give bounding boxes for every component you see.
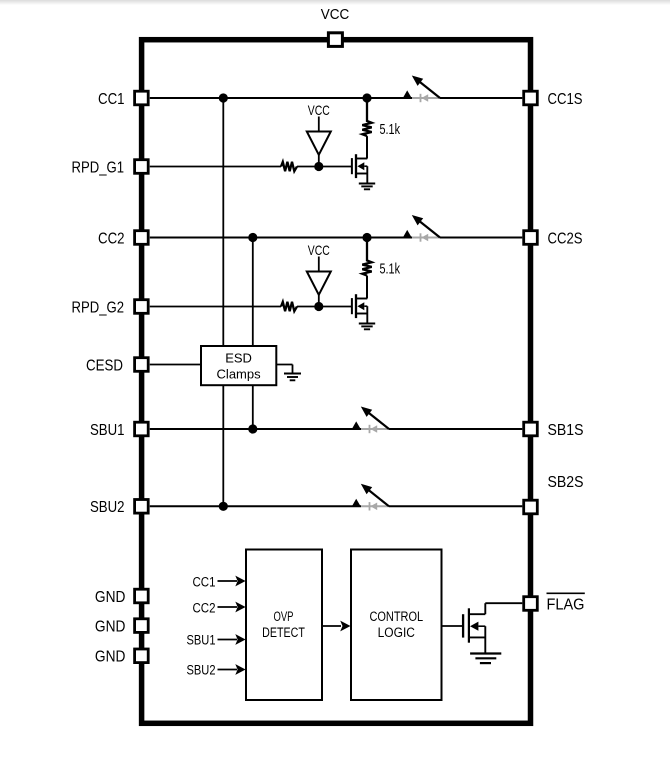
svg-text:SB1S: SB1S bbox=[548, 422, 584, 439]
svg-text:SBU1: SBU1 bbox=[187, 632, 216, 647]
svg-text:CESD: CESD bbox=[86, 357, 123, 374]
svg-text:RPD_G2: RPD_G2 bbox=[72, 299, 125, 316]
svg-text:RPD_G1: RPD_G1 bbox=[72, 159, 125, 176]
svg-text:CC2: CC2 bbox=[98, 230, 125, 247]
svg-text:SBU2: SBU2 bbox=[187, 662, 216, 677]
svg-text:CC1: CC1 bbox=[98, 91, 125, 108]
svg-text:CC2S: CC2S bbox=[548, 230, 583, 247]
svg-text:DETECT: DETECT bbox=[262, 625, 305, 640]
svg-text:LOGIC: LOGIC bbox=[378, 625, 416, 640]
svg-text:SB2S: SB2S bbox=[548, 474, 584, 491]
svg-text:CONTROL: CONTROL bbox=[369, 609, 423, 624]
svg-text:OVP: OVP bbox=[274, 609, 294, 624]
svg-text:SBU2: SBU2 bbox=[90, 499, 125, 516]
svg-text:CC1: CC1 bbox=[193, 574, 216, 589]
svg-text:CC2: CC2 bbox=[193, 600, 216, 615]
svg-text:SBU1: SBU1 bbox=[90, 422, 125, 439]
svg-text:5.1k: 5.1k bbox=[380, 122, 401, 138]
svg-text:5.1k: 5.1k bbox=[380, 262, 401, 278]
svg-text:GND: GND bbox=[95, 649, 126, 666]
svg-text:FLAG: FLAG bbox=[547, 597, 585, 614]
svg-text:VCC: VCC bbox=[321, 7, 350, 23]
svg-text:Clamps: Clamps bbox=[217, 367, 262, 382]
svg-text:CC1S: CC1S bbox=[548, 91, 583, 108]
svg-text:GND: GND bbox=[95, 589, 126, 606]
svg-text:GND: GND bbox=[95, 618, 126, 635]
svg-text:ESD: ESD bbox=[225, 351, 252, 366]
